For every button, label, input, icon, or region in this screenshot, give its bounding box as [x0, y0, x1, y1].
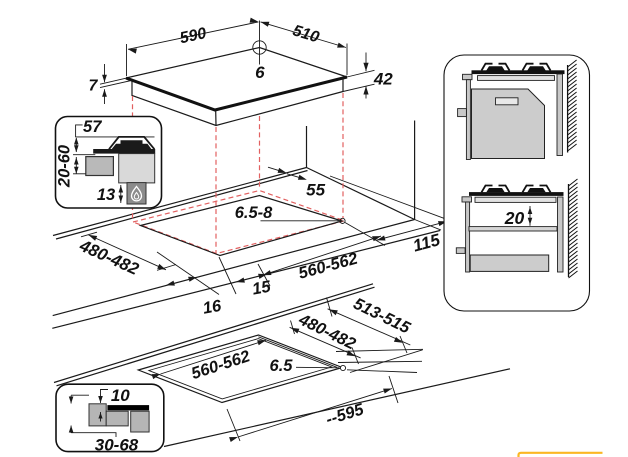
svg-text:42: 42 — [373, 70, 393, 89]
svg-text:20: 20 — [504, 208, 525, 228]
svg-text:13: 13 — [97, 186, 115, 204]
svg-text:10: 10 — [111, 386, 130, 405]
svg-text:7: 7 — [89, 77, 99, 94]
svg-text:6.5-8: 6.5-8 — [235, 204, 273, 222]
svg-text:20-60: 20-60 — [56, 144, 74, 188]
svg-text:6.5: 6.5 — [270, 357, 294, 375]
svg-text:30-68: 30-68 — [95, 435, 139, 454]
svg-text:57: 57 — [83, 118, 102, 136]
svg-text:6: 6 — [255, 63, 265, 82]
svg-text:55: 55 — [306, 181, 325, 200]
